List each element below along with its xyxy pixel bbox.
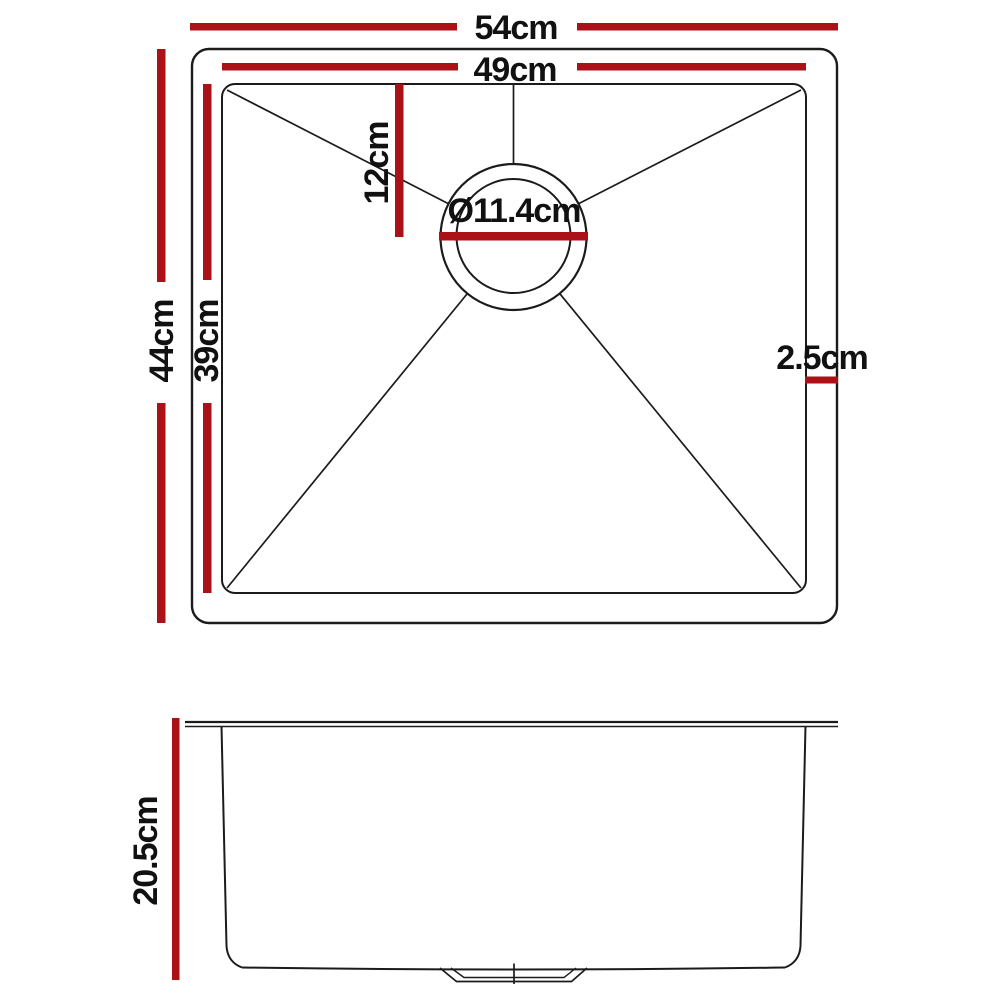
bowl-crease-bottom-right [560,294,801,588]
dim-label-inner-depth: 39cm [190,300,224,383]
sink-outer-rim-outline [192,49,837,623]
bowl-wall-right [785,726,806,968]
bowl-crease-top-right [579,90,802,204]
dim-39cm-bar-bottom [203,403,212,593]
dim-39cm-bar-top [203,84,212,280]
dim-2-5cm-bar [805,377,838,384]
dim-54cm-bar-left [190,23,457,31]
dim-49cm-bar-right [577,63,806,71]
dim-44cm-bar-bottom [157,403,166,623]
dim-label-inner-width: 49cm [474,53,557,87]
dim-label-outer-width: 54cm [475,11,558,45]
side-view [172,718,838,984]
bowl-crease-top-left [227,90,449,204]
dim-label-drain-offset: 12cm [360,122,394,205]
dim-11-4cm-bar [439,232,588,241]
dim-54cm-bar-right [577,23,838,31]
dim-label-drain-diameter: Ø11.4cm [448,194,581,228]
dim-label-rim-width: 2.5cm [776,341,867,375]
dim-20-5cm-bar [172,718,180,980]
dim-label-outer-depth: 44cm [145,300,179,383]
bowl-crease-bottom-left [227,294,467,588]
dim-49cm-bar-left [222,63,458,71]
dim-label-bowl-depth: 20.5cm [129,796,163,905]
bowl-wall-left [222,726,243,968]
dim-44cm-bar-top [157,49,166,282]
sink-dimension-diagram: 54cm 49cm 44cm 39cm 12cm Ø11.4cm 2.5cm 2… [0,0,999,1000]
top-view [157,23,838,623]
dim-12cm-bar [395,84,404,237]
